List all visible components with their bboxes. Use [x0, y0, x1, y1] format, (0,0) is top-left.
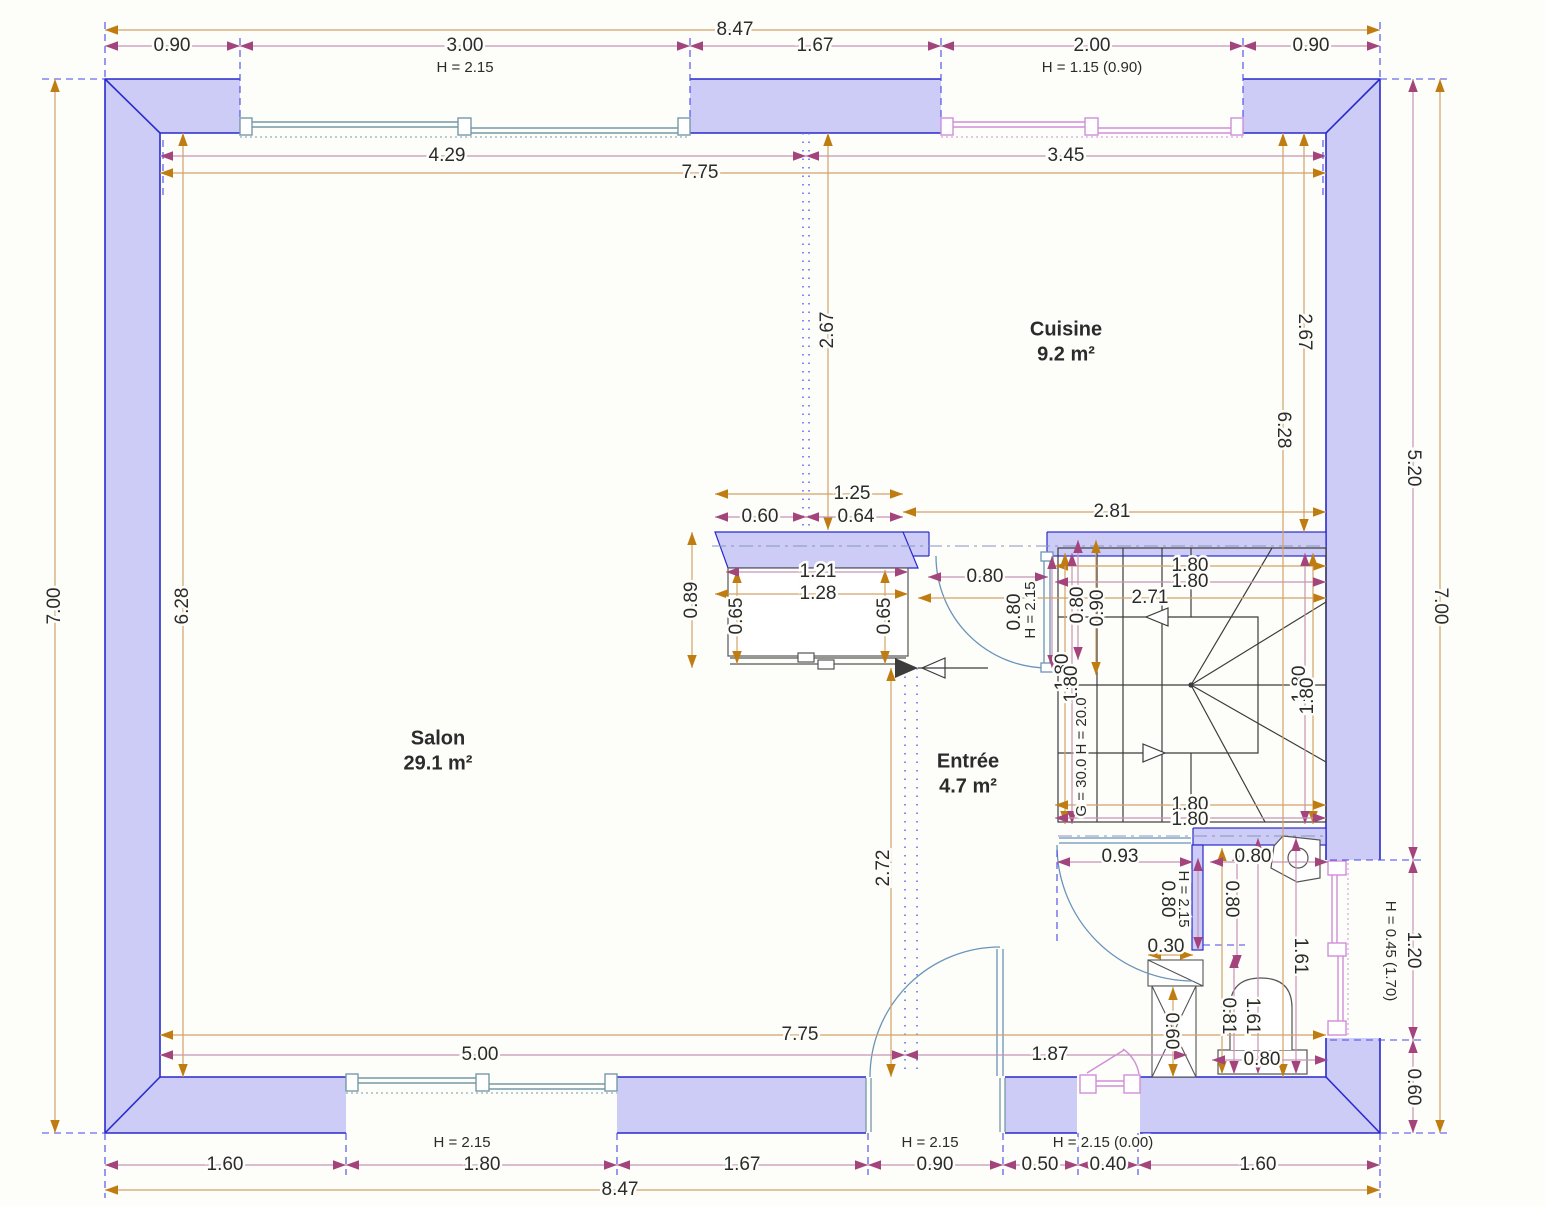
dim-label: H = 2.15 (0.00) [1053, 1134, 1153, 1151]
dim-label: 0.80 [1235, 846, 1272, 867]
dim-label: 3.45 [1048, 145, 1085, 166]
dim-label: 2.81 [1094, 501, 1131, 522]
dim-label: 0.60 [742, 506, 779, 527]
dim-label: 4.29 [429, 145, 466, 166]
dim-label: 1.67 [724, 1154, 761, 1175]
dim-label: 0.80 [967, 566, 1004, 587]
dim-label: 8.47 [602, 1179, 639, 1200]
dim-label: H = 2.15 [1175, 870, 1192, 927]
dim-label: 2.71 [1132, 587, 1169, 608]
dim-label: 1.21 [800, 561, 837, 582]
dim-label: H = 2.15 [901, 1134, 958, 1151]
room-label-name: Cuisine [1030, 318, 1102, 340]
sink-drain [1288, 848, 1308, 868]
dim-label: 6.28 [1273, 412, 1294, 449]
dim-label: 8.47 [717, 19, 754, 40]
dim-label: 1.60 [1240, 1154, 1277, 1175]
dim-label: 0.50 [1022, 1154, 1059, 1175]
dim-label: 0.60 [1161, 1013, 1182, 1050]
room-label-name: Salon [411, 727, 465, 749]
dim-label: 1.80 [1061, 666, 1082, 703]
dim-label: 0.90 [1293, 35, 1330, 56]
dim-label: 1.61 [1242, 998, 1263, 1035]
dim-label: H = 2.15 [436, 59, 493, 76]
dim-label: 0.81 [1218, 998, 1239, 1035]
dim-label: 7.75 [782, 1024, 819, 1045]
floor-plan-drawing: 8.470.903.001.672.000.90H = 2.15H = 1.15… [0, 0, 1545, 1206]
dim-label: 1.87 [1032, 1044, 1069, 1065]
dim-label: 1.61 [1290, 938, 1311, 975]
dim-label: 1.67 [797, 35, 834, 56]
dim-label: 2.67 [1294, 314, 1315, 351]
dim-label: 3.00 [447, 35, 484, 56]
dim-label: 7.75 [682, 162, 719, 183]
dim-label: 0.90 [154, 35, 191, 56]
dim-label: H = 2.15 [433, 1134, 490, 1151]
dim-label: 5.00 [462, 1044, 499, 1065]
dim-label: 1.60 [207, 1154, 244, 1175]
dim-label: 1.80 [464, 1154, 501, 1175]
dim-label: 0.65 [874, 598, 895, 635]
dim-label: H = 1.15 (0.90) [1042, 59, 1142, 76]
dim-label: 6.28 [172, 588, 193, 625]
dim-label: 0.30 [1148, 936, 1185, 957]
dim-label: 0.89 [681, 582, 702, 619]
dim-label: 0.93 [1102, 846, 1139, 867]
dim-label: 2.00 [1074, 35, 1111, 56]
dim-label: 1.80 [1172, 809, 1209, 830]
dim-label: 5.20 [1403, 450, 1424, 487]
dim-label: 2.72 [873, 850, 894, 887]
dim-label: H = 2.15 [1022, 581, 1039, 638]
room-label-name: Entrée [937, 750, 999, 772]
dim-label: G = 30.0 H = 20.0 [1073, 697, 1090, 816]
room-label-area: 29.1 m² [404, 752, 473, 774]
stair-direction-arrow-up [1146, 608, 1168, 626]
dim-label: H = 0.45 (1.70) [1382, 901, 1399, 1001]
dim-label: 1.20 [1403, 932, 1424, 969]
room-label-area: 4.7 m² [939, 775, 997, 797]
dim-label: 0.80 [1221, 881, 1242, 918]
dim-label: 1.80 [1172, 571, 1209, 592]
dim-label: 0.65 [726, 598, 747, 635]
dim-label: 0.80 [1157, 881, 1178, 918]
floor-plan-canvas: 8.470.903.001.672.000.90H = 2.15H = 1.15… [0, 0, 1545, 1206]
dim-label: 0.90 [917, 1154, 954, 1175]
dim-label: 0.80 [1067, 587, 1088, 624]
dim-label: 0.90 [1087, 590, 1108, 627]
dim-label: 0.64 [838, 506, 875, 527]
room-label-area: 9.2 m² [1037, 343, 1095, 365]
dim-label: 1.80 [1297, 678, 1318, 715]
dim-label: 1.25 [834, 483, 871, 504]
dim-label: 0.60 [1403, 1069, 1424, 1106]
dim-label: 0.80 [1244, 1049, 1281, 1070]
section-cut-symbol [895, 658, 988, 678]
dim-label: 0.40 [1090, 1154, 1127, 1175]
dim-label: 1.28 [800, 583, 837, 604]
dim-label: 7.00 [1430, 588, 1451, 625]
dim-label: 7.00 [44, 588, 65, 625]
dim-label: 2.67 [817, 312, 838, 349]
